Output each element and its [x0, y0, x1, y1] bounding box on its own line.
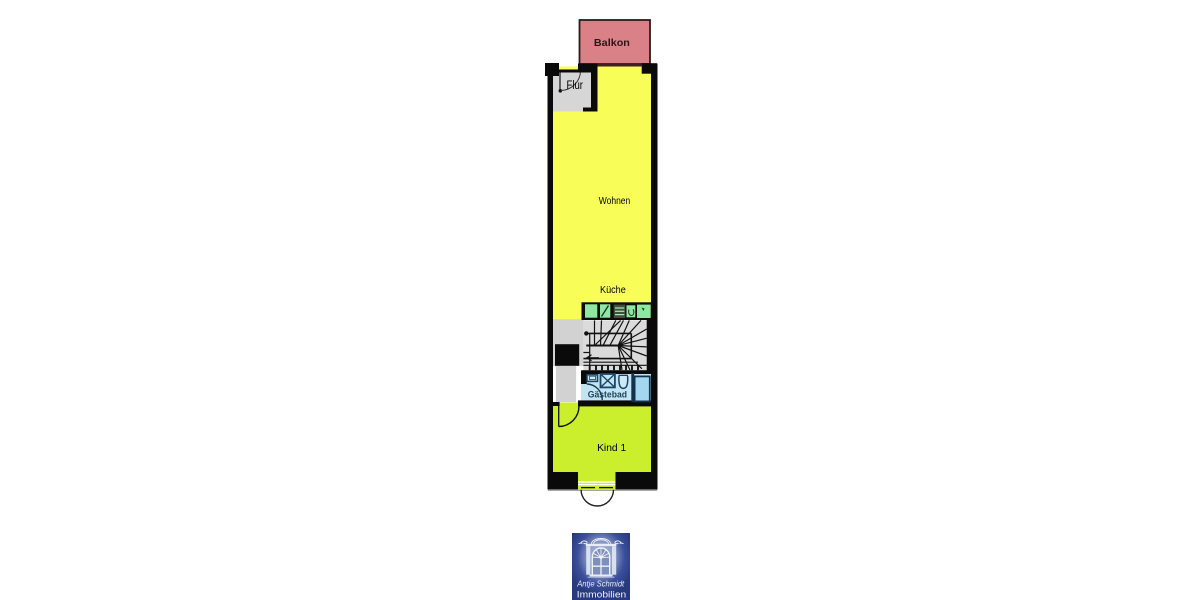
- svg-text:Balkon: Balkon: [594, 37, 630, 49]
- svg-text:Küche: Küche: [600, 285, 626, 296]
- svg-text:Kind 1: Kind 1: [597, 442, 626, 454]
- svg-text:Antje Schmidt: Antje Schmidt: [576, 579, 624, 589]
- svg-text:Wohnen: Wohnen: [599, 196, 631, 207]
- svg-text:Immobilien: Immobilien: [577, 589, 626, 600]
- svg-text:Flur: Flur: [567, 80, 584, 92]
- svg-text:Gästebad: Gästebad: [588, 389, 627, 399]
